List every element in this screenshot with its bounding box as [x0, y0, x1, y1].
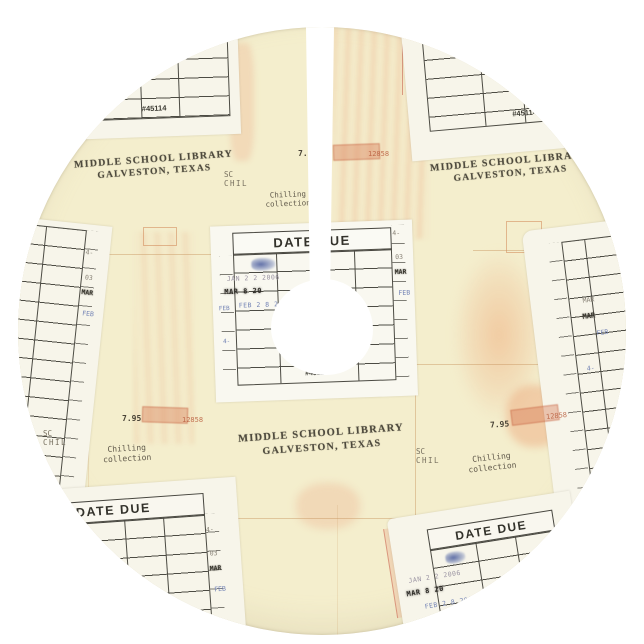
- margin-stamp-fragment: 4-: [586, 364, 595, 373]
- tree-skirt-slit: [306, 27, 334, 312]
- grid-line: [163, 518, 177, 635]
- card-grid: [23, 514, 217, 635]
- margin-stamp-fragment: 4-: [392, 229, 400, 237]
- margin-stamp-fragment: FEB: [214, 585, 226, 594]
- accession-number: 12858: [182, 416, 203, 424]
- margin-stamp-fragment: MAR: [209, 564, 221, 573]
- call-line2: CHIL: [224, 179, 258, 188]
- tree-skirt-center-hole: [271, 279, 373, 375]
- price-label: 7.95: [490, 419, 510, 429]
- call-line2: CHIL: [43, 438, 77, 447]
- collection-label: Chilling collection: [451, 449, 533, 477]
- library-card-top-left: #45114: [55, 27, 241, 140]
- margin-stamp-fragment: FEB: [398, 289, 410, 297]
- call-line1: SC: [416, 447, 450, 456]
- date-stamp-mar: MAR 8 20: [224, 287, 262, 296]
- product-photo-canvas: #45114 #45114 4- 03 MAR FEB: [0, 0, 644, 644]
- card-number: #45114: [79, 96, 230, 120]
- margin-stamp-fragment: FEB: [596, 328, 609, 337]
- margin-stamp-fragment: 4-: [85, 248, 94, 257]
- library-stamp-left: MIDDLE SCHOOL LIBRARY GALVESTON, TEXAS: [73, 147, 234, 183]
- card-grid: [430, 529, 577, 635]
- smudged-date-stamp: [251, 257, 275, 271]
- library-stamp-bottom: MIDDLE SCHOOL LIBRARY GALVESTON, TEXAS: [233, 421, 409, 460]
- seam-line: [337, 505, 338, 635]
- card-grid: #45114: [415, 27, 621, 132]
- stain-box-outline-left: [143, 227, 177, 246]
- margin-stamp-fragment: MAR: [582, 311, 596, 320]
- margin-stamp-fragment: 03: [209, 549, 217, 558]
- accession-number: 12858: [368, 150, 389, 158]
- grid-line: [515, 537, 537, 635]
- stain-bottom-center: [296, 483, 360, 529]
- grid-line: [124, 520, 138, 635]
- call-line1: SC: [224, 170, 258, 179]
- call-number-stamp: SC CHIL: [416, 447, 450, 466]
- collection-label: Chilling collection: [88, 442, 167, 466]
- price-label: 7.95: [122, 414, 141, 423]
- margin-stamp-fragment: MAR: [395, 268, 407, 276]
- date-due-card-bottom-left: DATE DUE 4- 03 MAR FEB: [18, 477, 250, 635]
- margin-stamp-fragment: 4-: [223, 338, 230, 345]
- seam-line: [218, 518, 403, 519]
- grid-line: [475, 543, 497, 635]
- margin-stamp-fragment: 4-: [206, 525, 214, 534]
- call-line2: CHIL: [416, 456, 450, 465]
- seam-line: [412, 364, 544, 365]
- call-number-stamp: SC CHIL: [43, 429, 77, 448]
- library-card-top-right: #45114: [394, 27, 626, 161]
- tree-skirt: #45114 #45114 4- 03 MAR FEB: [18, 27, 626, 635]
- date-due-card-bottom-right: DATE DUE JAN 2 2 2006 MAR 8 20 FEB 2 8 2…: [387, 491, 599, 635]
- call-number-stamp: SC CHIL: [224, 170, 258, 189]
- margin-stamp-fragment: MAR: [81, 288, 94, 297]
- margin-stamp-fragment: 03: [85, 273, 94, 282]
- call-line1: SC: [43, 429, 77, 438]
- margin-stamp-fragment: FEB: [82, 309, 95, 318]
- margin-stamp-fragment: FEB: [219, 305, 230, 312]
- margin-stamp-fragment: 03: [395, 253, 403, 261]
- card-grid: #45114: [73, 27, 230, 121]
- margin-stamp-fragment: MAR: [582, 295, 595, 304]
